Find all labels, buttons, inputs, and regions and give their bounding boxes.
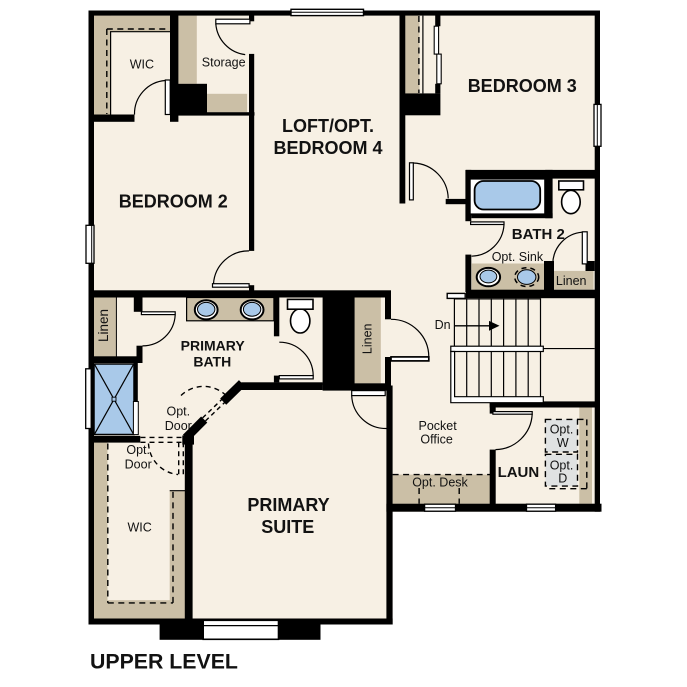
svg-text:UPPER LEVEL: UPPER LEVEL bbox=[90, 650, 238, 674]
svg-text:Opt.: Opt. bbox=[126, 443, 150, 457]
svg-text:Storage: Storage bbox=[202, 56, 246, 70]
svg-text:Linen: Linen bbox=[96, 309, 111, 342]
svg-text:Opt. Desk: Opt. Desk bbox=[412, 476, 468, 490]
svg-text:Office: Office bbox=[420, 433, 452, 447]
svg-text:Door: Door bbox=[125, 457, 152, 471]
svg-text:PRIMARY: PRIMARY bbox=[181, 337, 246, 353]
svg-text:Pocket: Pocket bbox=[418, 419, 457, 433]
svg-text:BEDROOM 4: BEDROOM 4 bbox=[273, 138, 382, 158]
svg-text:BATH 2: BATH 2 bbox=[512, 226, 565, 243]
svg-text:BEDROOM 3: BEDROOM 3 bbox=[468, 76, 577, 96]
svg-text:Linen: Linen bbox=[556, 274, 587, 288]
svg-text:Opt. Sink: Opt. Sink bbox=[492, 250, 544, 264]
svg-text:Opt.: Opt. bbox=[550, 458, 574, 472]
svg-text:LAUN: LAUN bbox=[498, 464, 540, 481]
svg-text:Dn: Dn bbox=[435, 318, 451, 332]
svg-text:Opt.: Opt. bbox=[166, 405, 190, 419]
svg-text:Door: Door bbox=[165, 419, 192, 433]
svg-text:LOFT/OPT.: LOFT/OPT. bbox=[282, 116, 374, 136]
svg-text:Linen: Linen bbox=[360, 323, 374, 354]
svg-text:BEDROOM 2: BEDROOM 2 bbox=[119, 192, 228, 212]
svg-text:PRIMARY: PRIMARY bbox=[247, 495, 329, 515]
svg-text:SUITE: SUITE bbox=[261, 517, 314, 537]
svg-text:W: W bbox=[557, 436, 569, 450]
svg-text:BATH: BATH bbox=[193, 354, 231, 370]
svg-text:WIC: WIC bbox=[130, 58, 154, 72]
svg-text:D: D bbox=[558, 472, 567, 486]
svg-text:WIC: WIC bbox=[127, 520, 151, 534]
svg-text:Opt.: Opt. bbox=[550, 423, 574, 437]
